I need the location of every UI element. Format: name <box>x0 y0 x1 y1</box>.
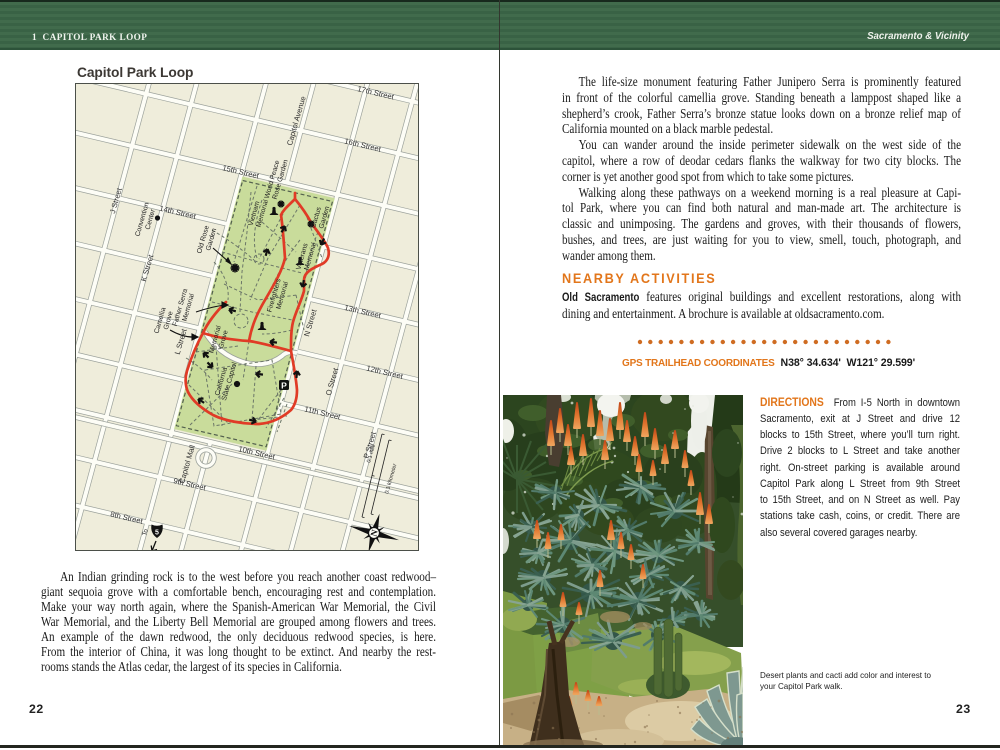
svg-text:P: P <box>281 381 287 391</box>
svg-text:5: 5 <box>155 530 159 537</box>
